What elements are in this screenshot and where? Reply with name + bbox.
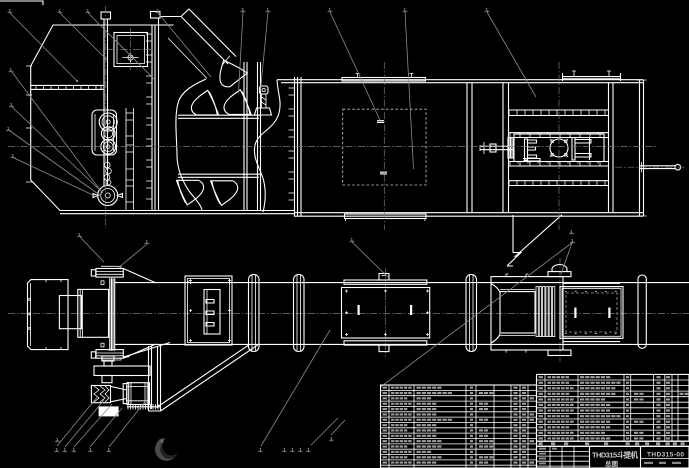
svg-text:总图: 总图 [605, 459, 619, 468]
svg-text:THD315斗提机: THD315斗提机 [592, 450, 639, 460]
svg-text:THD315-00: THD315-00 [647, 452, 684, 459]
